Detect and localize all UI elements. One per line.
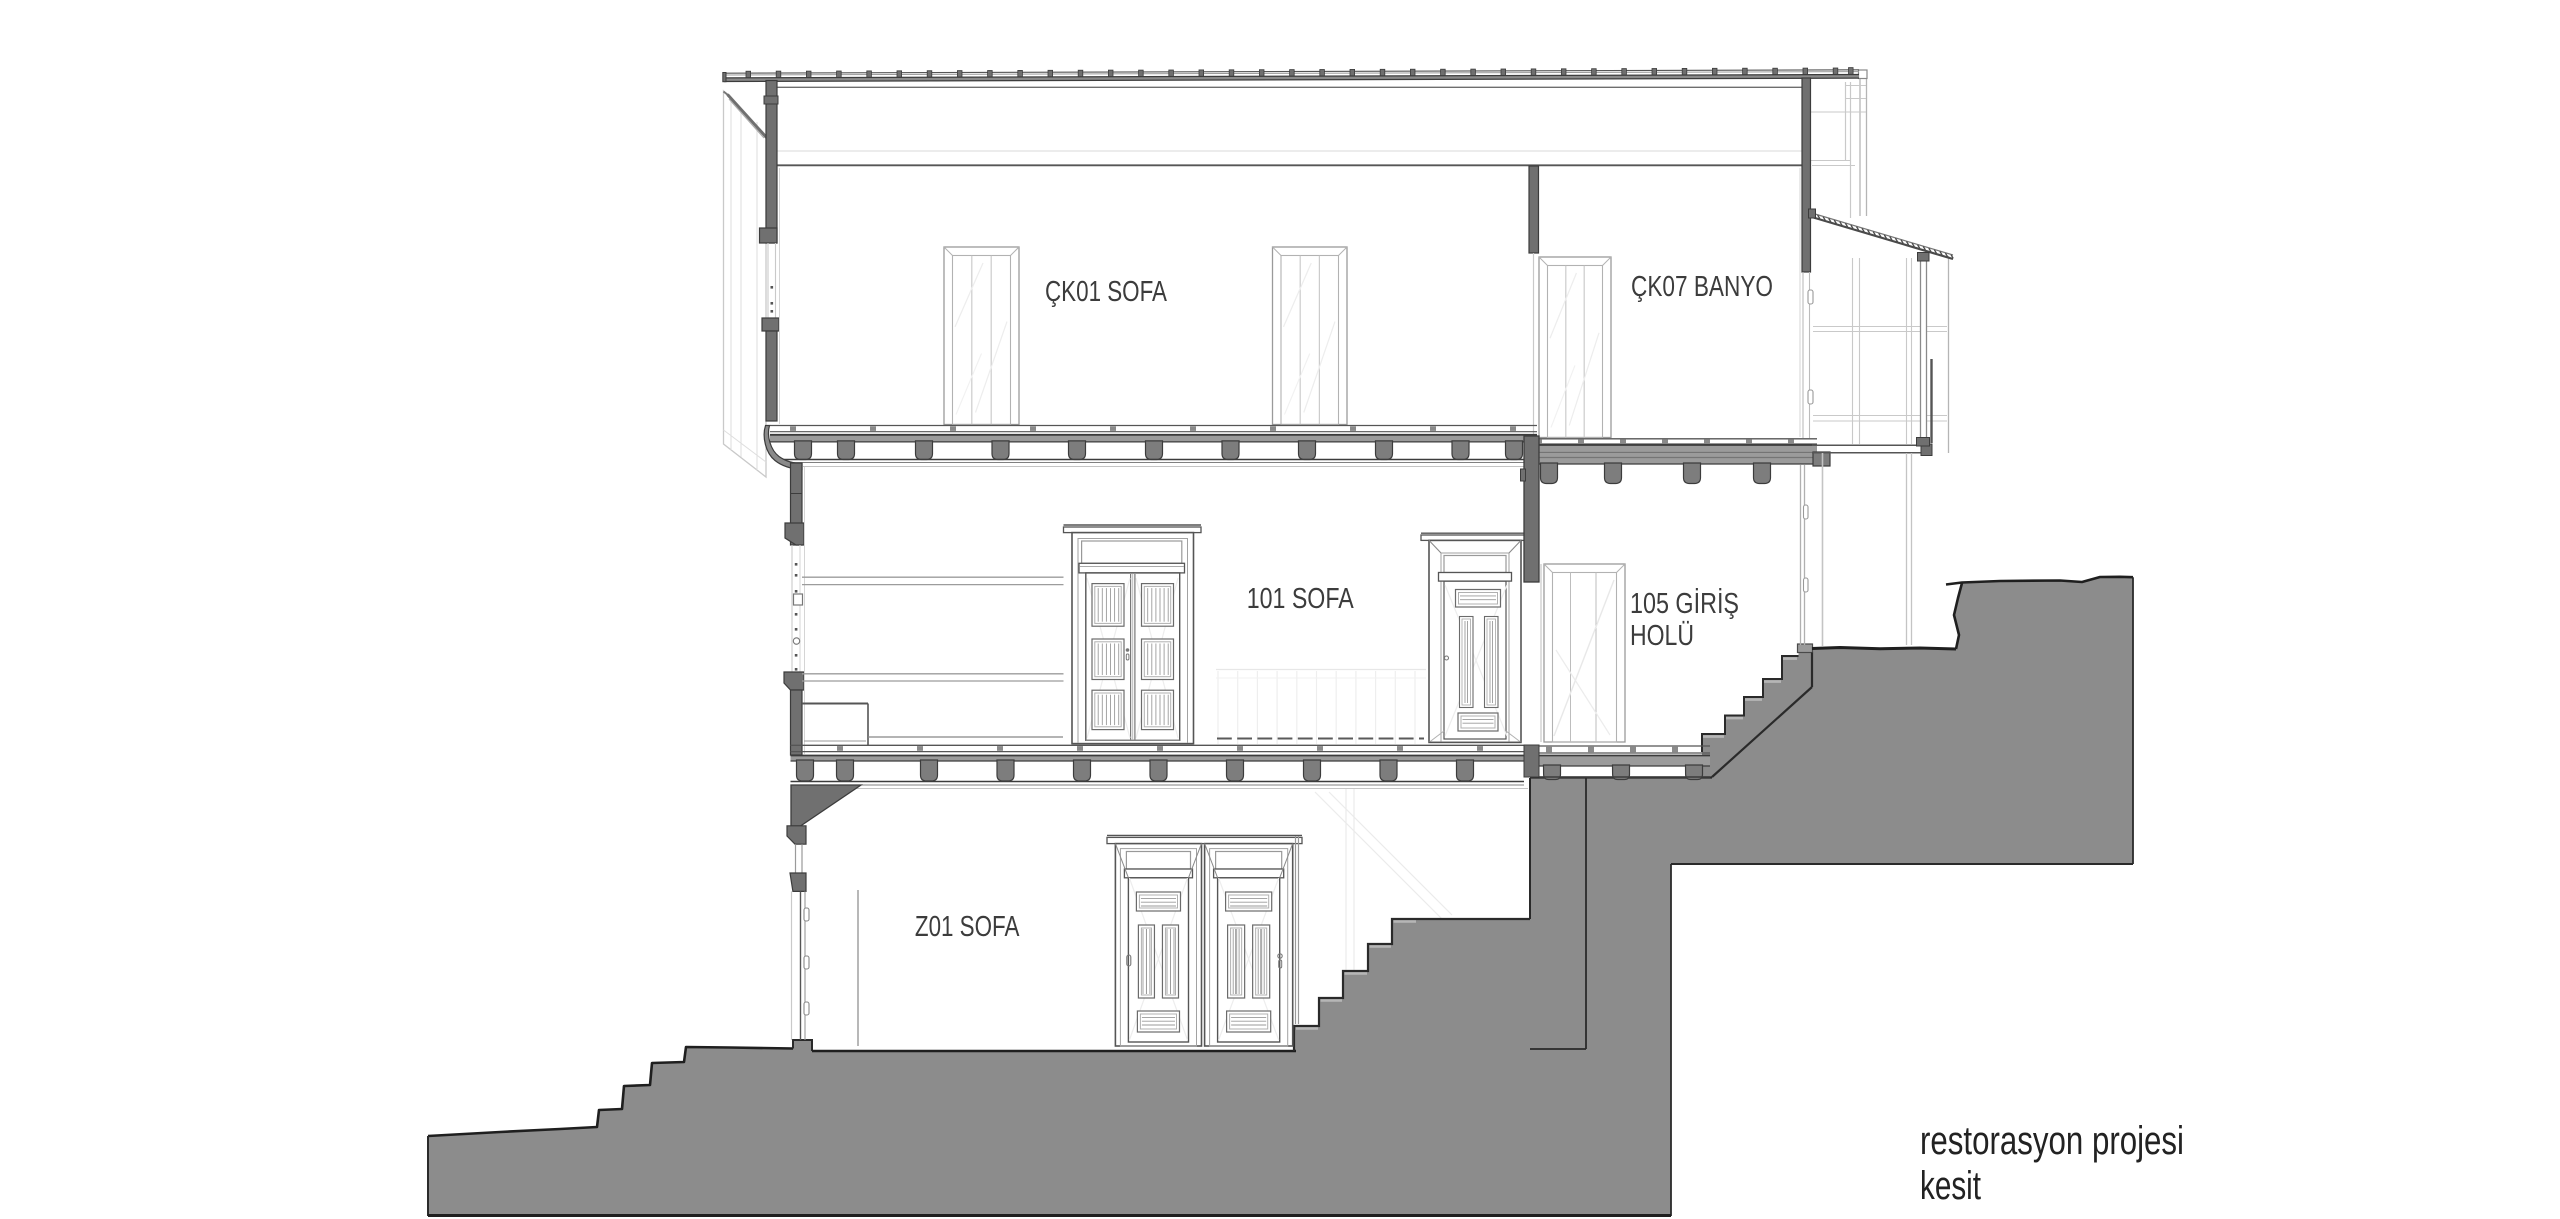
- svg-text:Z01 SOFA: Z01 SOFA: [915, 911, 1020, 943]
- svg-text:101 SOFA: 101 SOFA: [1247, 583, 1355, 615]
- svg-text:105 GİRİŞ: 105 GİRİŞ: [1630, 587, 1739, 620]
- svg-text:ÇK07 BANYO: ÇK07 BANYO: [1631, 271, 1773, 303]
- svg-text:kesit: kesit: [1920, 1164, 1981, 1208]
- svg-text:ÇK01 SOFA: ÇK01 SOFA: [1045, 276, 1167, 308]
- svg-text:HOLÜ: HOLÜ: [1630, 620, 1694, 652]
- svg-text:restorasyon projesi: restorasyon projesi: [1920, 1119, 2184, 1163]
